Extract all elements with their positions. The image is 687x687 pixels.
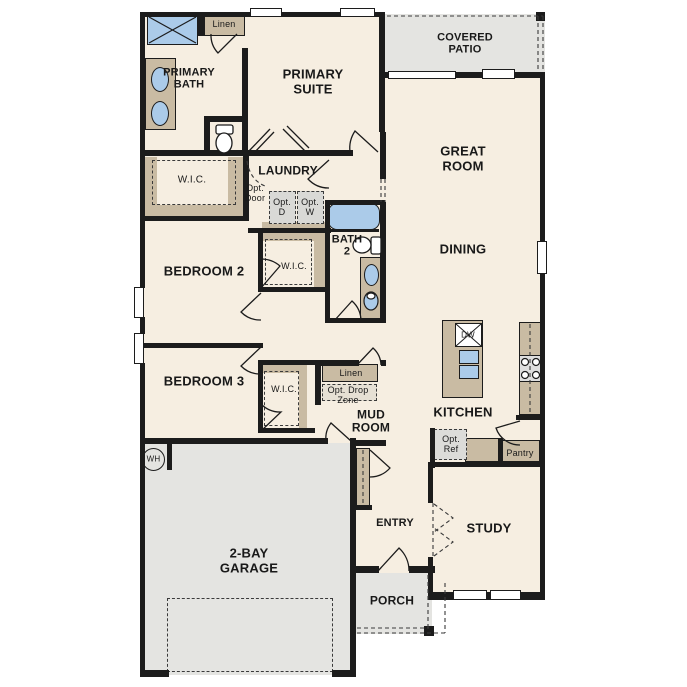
- wall: [325, 200, 385, 205]
- wic-primary-shelf-bottom: [145, 205, 244, 216]
- wall: [540, 77, 545, 242]
- porch-post: [424, 626, 434, 636]
- entry-coat-closet: [356, 448, 370, 506]
- label-opt-door: Opt. Door: [245, 183, 265, 203]
- garage-door-dash: [167, 598, 333, 672]
- room-label-bedroom3: BEDROOM 3: [164, 375, 245, 390]
- wall: [258, 360, 315, 365]
- wic-bed2-shelf-right: [314, 241, 325, 287]
- window: [453, 590, 487, 600]
- wall: [315, 360, 321, 405]
- label-water-heater: WH: [147, 455, 161, 464]
- room-label-porch: PORCH: [370, 594, 414, 607]
- window: [490, 590, 521, 600]
- label-wic-bed3: W.I.C.: [271, 384, 297, 394]
- wall: [380, 132, 386, 179]
- label-opt-ref: Opt. Ref: [442, 434, 460, 454]
- room-label-primary-suite: PRIMARY SUITE: [283, 67, 344, 96]
- window: [388, 71, 456, 79]
- wall: [258, 360, 263, 433]
- window: [340, 8, 375, 17]
- label-opt-drop-zone: Opt. Drop Zone: [328, 385, 369, 405]
- window: [134, 287, 144, 318]
- wall: [332, 670, 356, 677]
- wall: [243, 150, 353, 156]
- room-label-kitchen: KITCHEN: [433, 406, 492, 421]
- wall: [428, 467, 433, 503]
- range: [519, 355, 541, 382]
- wall: [354, 505, 372, 510]
- label-opt-d: Opt. D: [273, 197, 291, 217]
- wic-bed3-shelf-right: [299, 373, 307, 428]
- wall: [455, 72, 483, 78]
- kitchen-sink-basin-1: [459, 350, 479, 364]
- label-wic-primary: W.I.C.: [178, 174, 206, 185]
- wall: [258, 287, 328, 292]
- wall: [381, 360, 386, 366]
- wall: [258, 233, 263, 292]
- wall: [315, 360, 359, 366]
- wall: [198, 12, 204, 36]
- wall: [280, 12, 342, 17]
- wall: [140, 150, 244, 156]
- wall: [428, 557, 433, 594]
- patio-post: [536, 12, 545, 21]
- label-linen-mud: Linen: [339, 368, 362, 378]
- wall: [167, 444, 172, 470]
- wall: [140, 216, 249, 221]
- wall: [498, 438, 503, 464]
- room-label-covered-patio: COVERED PATIO: [437, 32, 493, 57]
- wall: [204, 116, 247, 122]
- wall: [350, 438, 356, 677]
- kitchen-sink-basin-2: [459, 365, 479, 379]
- sliding-door: [482, 69, 515, 79]
- room-label-study: STUDY: [466, 522, 511, 537]
- wall: [428, 462, 545, 467]
- label-pantry: Pantry: [506, 448, 533, 458]
- label-dishwasher: DW: [461, 332, 475, 341]
- wall: [140, 343, 263, 348]
- window: [250, 8, 282, 17]
- shower: [147, 15, 198, 45]
- room-label-bath2: BATH 2: [332, 234, 363, 259]
- primary-sink-2: [151, 101, 169, 126]
- wall: [350, 440, 386, 446]
- kitchen-counter-bottom: [465, 438, 499, 462]
- wall: [380, 202, 386, 323]
- bathtub: [328, 203, 380, 230]
- label-opt-w: Opt. W: [301, 197, 319, 217]
- label-linen-bath: Linen: [212, 19, 235, 29]
- room-label-entry: ENTRY: [376, 517, 414, 529]
- room-label-dining: DINING: [440, 243, 487, 258]
- wall: [428, 592, 454, 600]
- room-label-great-room: GREAT ROOM: [440, 144, 486, 173]
- room-label-garage: 2-BAY GARAGE: [220, 546, 278, 575]
- room-label-primary-bath: PRIMARY BATH: [163, 67, 215, 92]
- window: [134, 333, 144, 364]
- window: [537, 241, 547, 274]
- wall: [325, 200, 330, 323]
- wall: [242, 48, 248, 152]
- wall: [353, 566, 379, 573]
- room-label-laundry: LAUNDRY: [258, 164, 318, 177]
- label-wic-bed2: W.I.C.: [281, 261, 307, 271]
- wall: [325, 318, 386, 323]
- wall: [540, 273, 545, 600]
- wall: [140, 670, 169, 677]
- room-label-mud-room: MUD ROOM: [352, 409, 390, 436]
- wall: [516, 415, 544, 420]
- wall: [258, 428, 315, 433]
- bath2-sink: [364, 264, 379, 286]
- wic-bed3-dash: [264, 371, 299, 426]
- wall: [140, 363, 145, 677]
- wall: [140, 12, 252, 17]
- room-label-bedroom2: BEDROOM 2: [164, 265, 245, 280]
- wall: [140, 317, 145, 334]
- wall: [514, 72, 545, 78]
- floor-plan: COVERED PATIO PRIMARY SUITE PRIMARY BATH…: [0, 0, 687, 687]
- wall: [330, 229, 379, 232]
